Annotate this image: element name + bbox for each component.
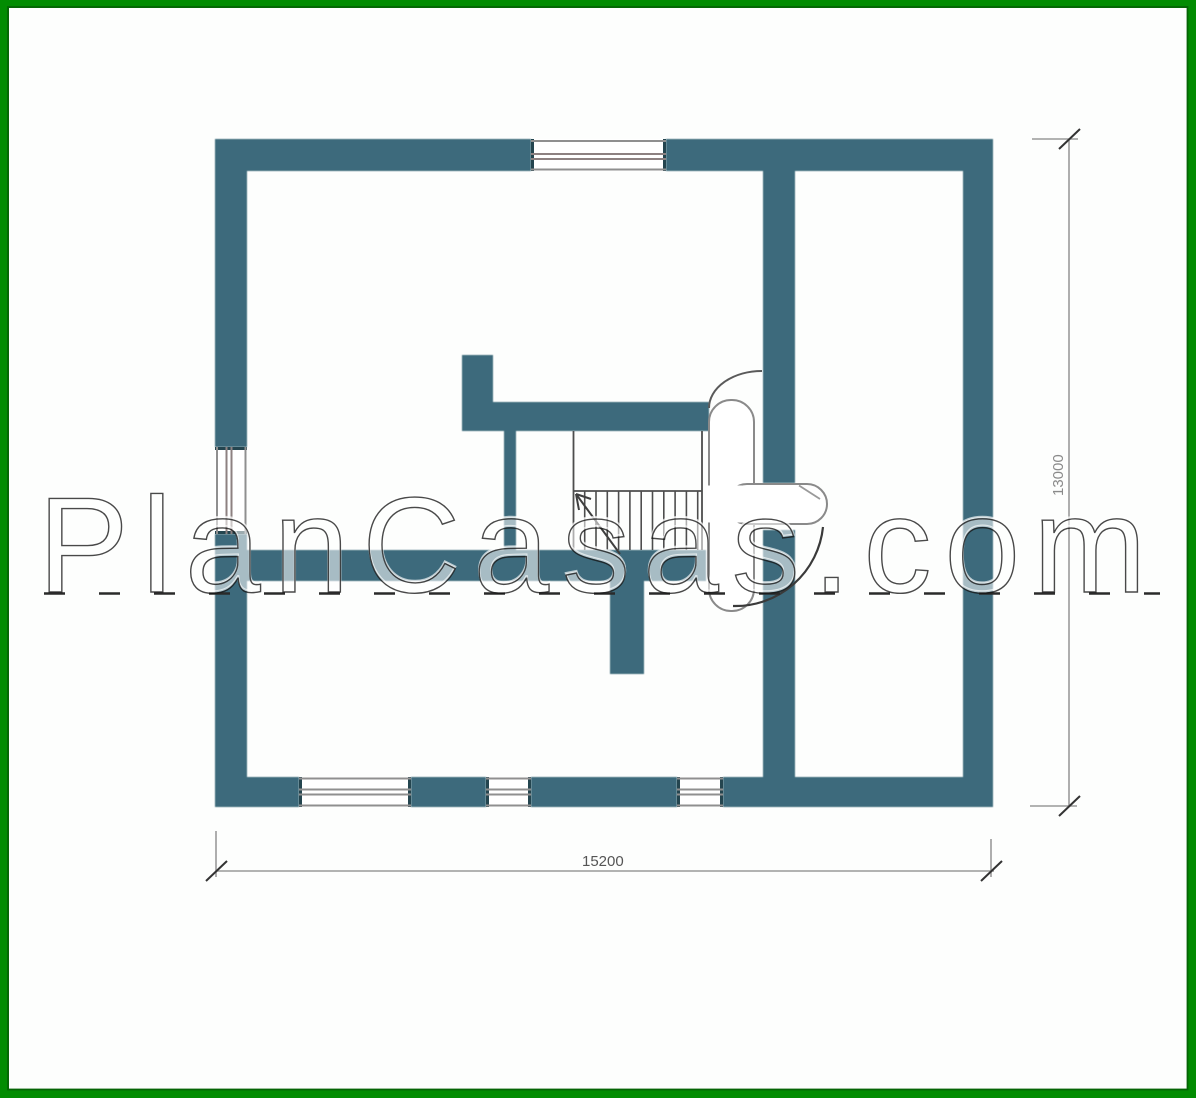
svg-text:PlanCasas.com: PlanCasas.com	[38, 469, 1159, 621]
svg-text:15200: 15200	[582, 853, 624, 870]
